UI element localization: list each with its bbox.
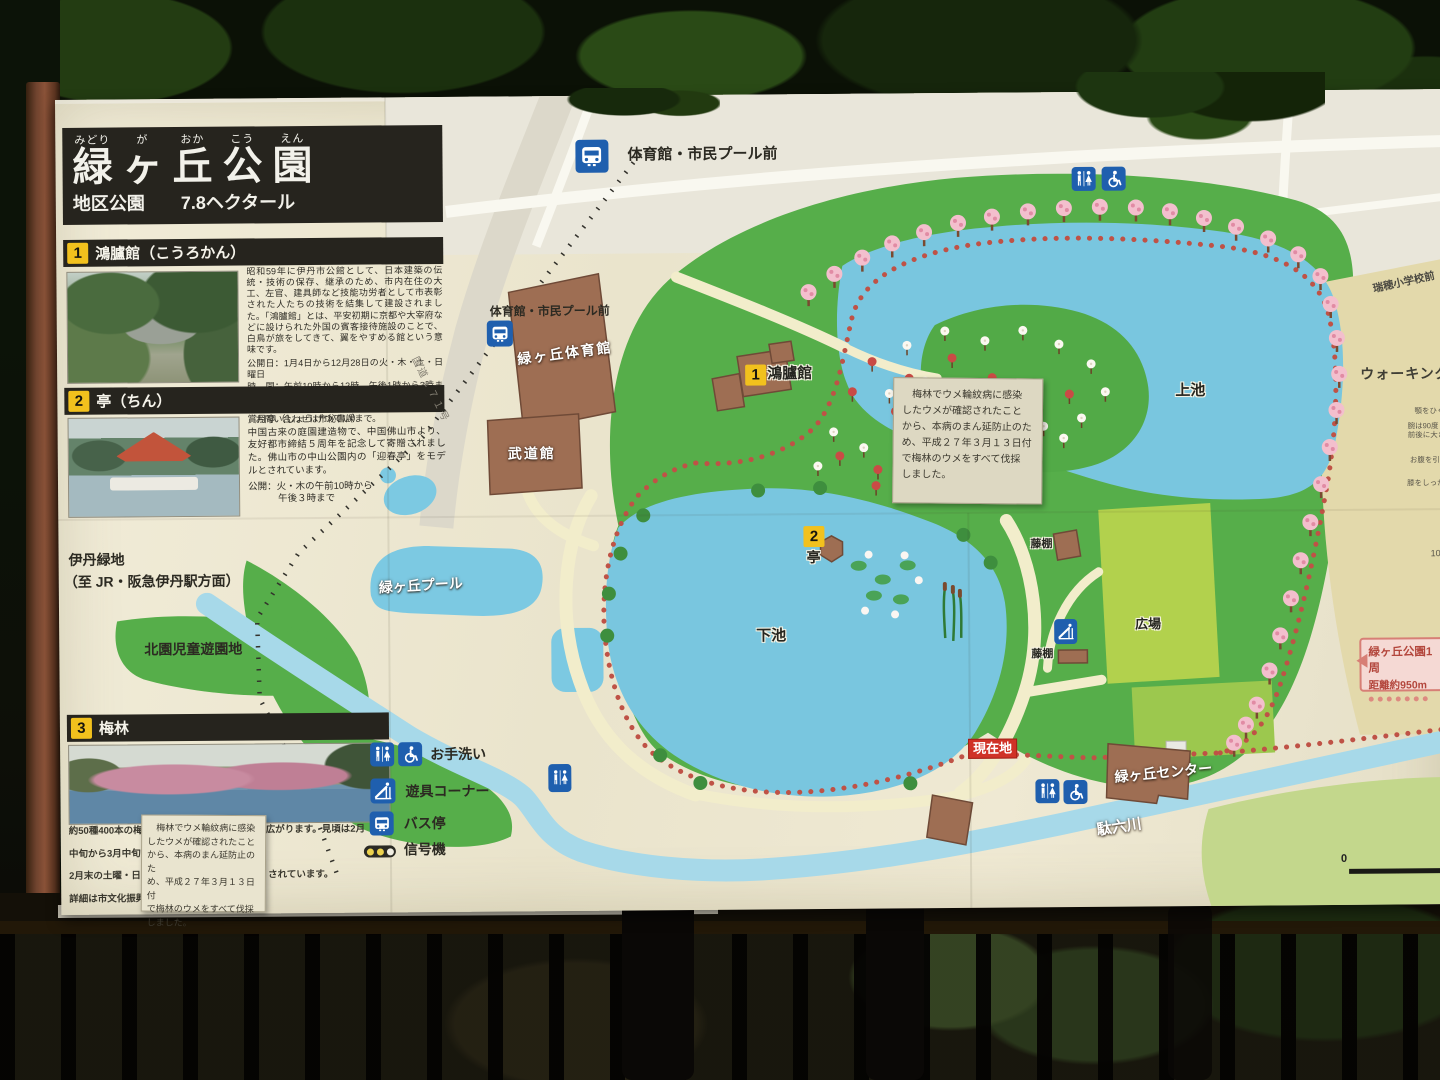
bus-stop-gym-label: 体育館・市民プール前 — [490, 305, 610, 319]
pavilion-roof — [116, 432, 191, 462]
info-box-1-header: 1 鴻臚館（こうろかん） — [63, 237, 443, 267]
playground-icon — [1054, 619, 1077, 644]
walking-tip: 前後に大きくふる — [1408, 431, 1440, 440]
number-badge-2: 2 — [68, 391, 89, 412]
toilet-icon — [548, 764, 571, 792]
number-badge-3: 3 — [71, 718, 92, 739]
toilet-icon — [1035, 779, 1059, 803]
wheelchair-icon — [1102, 167, 1126, 191]
bus-icon — [370, 811, 394, 835]
number-badge-1: 1 — [67, 243, 88, 264]
lower-pond-label: 下池 — [756, 628, 786, 645]
walking-tip: 顎をひく — [1414, 407, 1440, 415]
fujidana-a-structure — [1053, 530, 1080, 560]
park-classification: 地区公園 7.8ヘクタール — [73, 187, 443, 216]
upper-pond-label: 上池 — [1175, 383, 1205, 400]
photo-of-park-sign: みどり緑 がヶ おか丘 こう公 えん園 地区公園 7.8ヘクタール 1 鴻臚館（… — [0, 0, 1440, 1080]
tei-photo — [67, 417, 240, 518]
scale-zero-label: 0 — [1341, 853, 1347, 865]
budokan-label: 武道館 — [508, 446, 556, 462]
tree-trunk — [1168, 904, 1212, 1080]
bus-icon — [575, 140, 608, 173]
walking-tip: 膝をしっかり伸ばす — [1407, 479, 1440, 488]
info-box-3-text: されています。 — [268, 866, 333, 881]
toilet-icon — [1072, 167, 1096, 191]
tei-label: 亭 — [807, 550, 821, 566]
walking-tip: お腹を引きしめて — [1410, 456, 1440, 465]
itami-greenbelt-direction: （至 JR・阪急伊丹駅方面） — [64, 574, 240, 591]
number-badge-2-map: 2 — [803, 526, 824, 547]
info-box-3-text: 広がります。見頃は2月 — [266, 821, 365, 836]
scale-bar — [1349, 868, 1440, 874]
current-location-marker: 現在地 — [968, 738, 1017, 758]
plum-removal-notice: 梅林でウメ輪紋病に感染したウメが確認されたこと から、本病のまん延防止のため、平… — [141, 814, 267, 912]
legend-playground-label: 遊具コーナー — [405, 784, 489, 800]
hiroba-label: 広場 — [1135, 617, 1161, 632]
kourokan-label: 鴻臚館 — [767, 366, 812, 383]
pavilion-base — [110, 477, 198, 490]
toilet-icon — [370, 742, 394, 766]
info-box-3-header: 3 梅林 — [67, 712, 389, 742]
kitazono-label: 北園児童遊園地 — [144, 642, 242, 658]
legend-toilet-label: お手洗い — [430, 747, 486, 763]
info-box-3-title: 梅林 — [99, 717, 129, 738]
legend-bus-label: バス停 — [404, 816, 446, 832]
fujidana-label: 藤棚 — [1030, 538, 1052, 550]
fujidana-label: 藤棚 — [1031, 648, 1053, 660]
park-sign-board: みどり緑 がヶ おか丘 こう公 えん園 地区公園 7.8ヘクタール 1 鴻臚館（… — [55, 89, 1440, 915]
loop-dots — [1369, 696, 1440, 702]
walking-fragment: 100 — [1431, 549, 1440, 559]
tree-trunk — [622, 898, 694, 1080]
plum-removal-notice-map: 梅林でウメ輪紋病に感染したウメが確認されたこと から、本病のまん延防止のため、平… — [892, 377, 1043, 504]
wheelchair-icon — [1063, 780, 1087, 804]
fence-bars — [0, 928, 1440, 1080]
info-box-3-text: 約50種400本の梅が — [69, 822, 153, 837]
info-box-2-title: 亭（ちん） — [96, 390, 171, 412]
park-name: みどり緑 がヶ おか丘 こう公 えん園 — [72, 129, 442, 189]
itami-greenbelt-label: 伊丹緑地 — [69, 552, 125, 568]
wheelchair-icon — [398, 742, 422, 766]
info-box-1-title: 鴻臚館（こうろかん） — [95, 242, 245, 264]
sign-title-block: みどり緑 がヶ おか丘 こう公 えん園 地区公園 7.8ヘクタール — [62, 125, 443, 225]
bus-stop-top-label: 体育館・市民プール前 — [627, 146, 777, 164]
bus-icon — [487, 320, 513, 346]
plum-grove-photo — [68, 742, 391, 825]
tree-trunk — [866, 898, 924, 1080]
signal-icon — [364, 845, 396, 857]
kourokan-photo — [66, 271, 239, 384]
walking-title: ウォーキング — [1360, 366, 1440, 382]
fujidana-b-structure — [1058, 650, 1087, 663]
legend-signal-label: 信号機 — [404, 842, 446, 858]
loop-distance-callout: 緑ヶ丘公園1周 距離約950m — [1359, 637, 1440, 692]
number-badge-1-map: 1 — [745, 364, 766, 385]
playground-icon — [370, 778, 395, 803]
info-box-2-text: 賞月亭（しょうげつてい） 中国古来の庭園建造物で、中国佛山市より、友好都市締結５… — [247, 413, 446, 507]
info-box-2-header: 2 亭（ちん） — [64, 385, 444, 415]
